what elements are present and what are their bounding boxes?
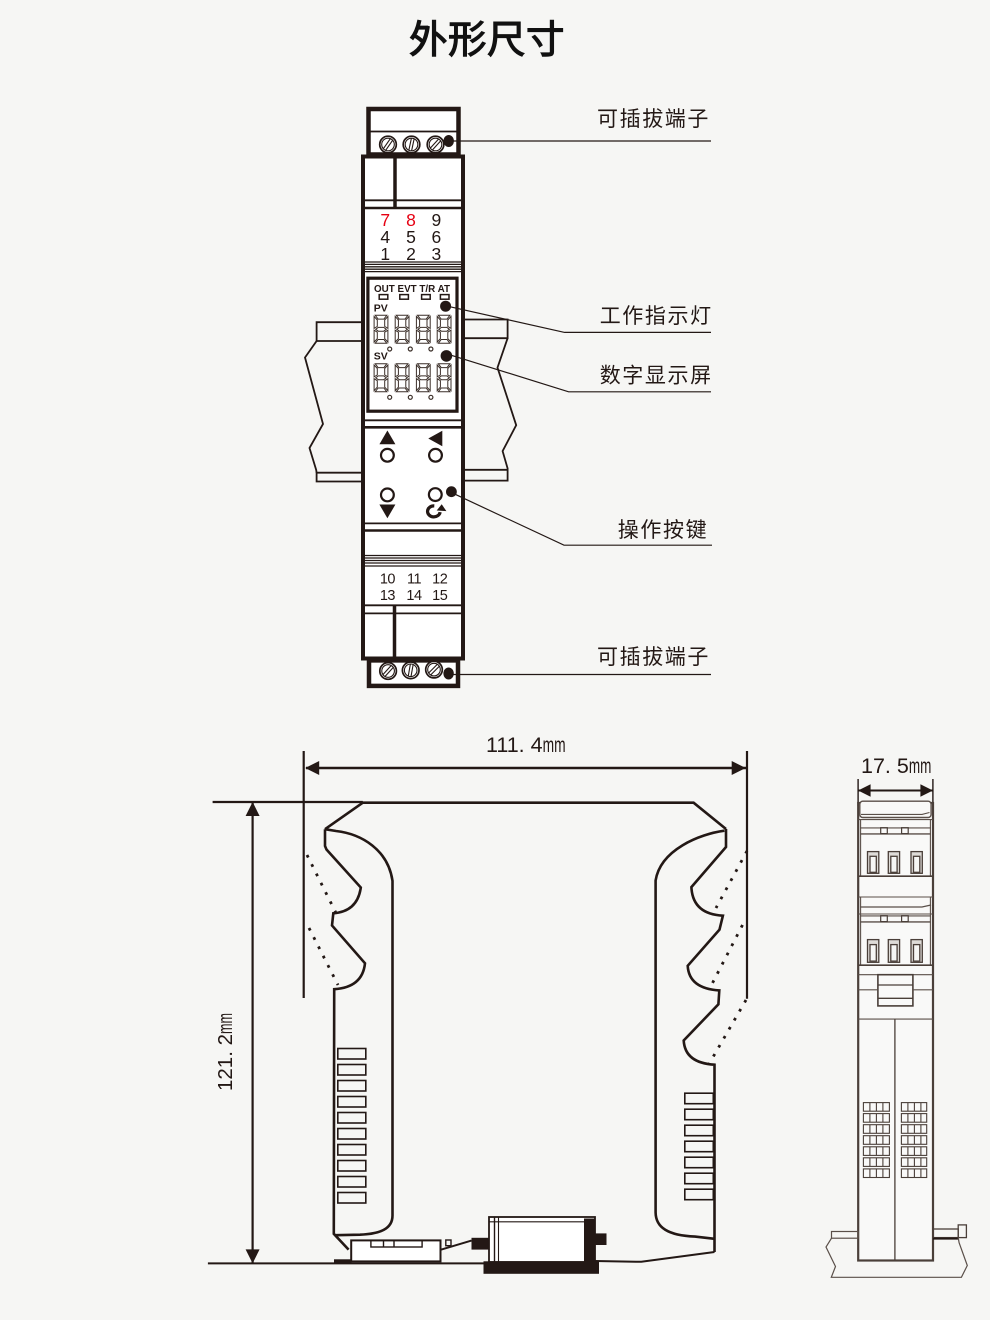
svg-text:14: 14 bbox=[406, 588, 422, 604]
svg-text:2: 2 bbox=[406, 244, 416, 264]
svg-text:121. 2mm: 121. 2mm bbox=[214, 1013, 237, 1091]
svg-text:数字显示屏: 数字显示屏 bbox=[600, 365, 713, 388]
svg-text:11: 11 bbox=[407, 572, 421, 588]
svg-text:3: 3 bbox=[432, 244, 442, 264]
svg-text:PV: PV bbox=[374, 303, 388, 315]
svg-text:12: 12 bbox=[432, 572, 448, 588]
svg-text:操作按键: 操作按键 bbox=[618, 519, 708, 542]
svg-text:可插拔端子: 可插拔端子 bbox=[597, 108, 710, 131]
svg-text:工作指示灯: 工作指示灯 bbox=[600, 305, 713, 328]
svg-text:17. 5mm: 17. 5mm bbox=[861, 754, 931, 778]
svg-text:10: 10 bbox=[380, 572, 396, 588]
svg-text:可插拔端子: 可插拔端子 bbox=[597, 646, 710, 669]
svg-text:OUT EVT T/R AT: OUT EVT T/R AT bbox=[374, 284, 450, 295]
svg-text:111. 4mm: 111. 4mm bbox=[486, 733, 566, 757]
svg-text:15: 15 bbox=[432, 588, 448, 604]
svg-text:外形尺寸: 外形尺寸 bbox=[409, 19, 565, 62]
svg-text:SV: SV bbox=[374, 351, 388, 363]
svg-text:13: 13 bbox=[380, 588, 396, 604]
svg-text:1: 1 bbox=[380, 244, 390, 264]
